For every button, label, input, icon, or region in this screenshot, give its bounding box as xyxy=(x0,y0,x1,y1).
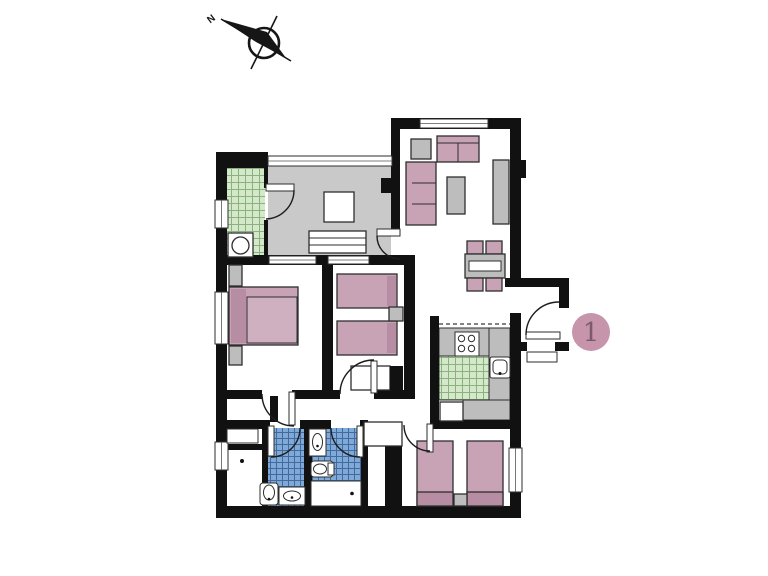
basin-drain xyxy=(291,496,294,499)
unit-badge[interactable]: 1 xyxy=(572,313,610,351)
armchair xyxy=(411,139,431,159)
burner xyxy=(458,335,464,341)
north-label: N xyxy=(205,13,217,26)
dining-chair xyxy=(486,241,502,254)
sofa-three-seat xyxy=(406,162,436,225)
kitchen-tiled-floor xyxy=(439,356,489,400)
wall-bottom xyxy=(216,506,521,518)
terrace-bench xyxy=(309,231,366,253)
wall-bath-top-a xyxy=(216,420,270,429)
toilet-tank xyxy=(328,463,334,475)
desk-cabinet xyxy=(390,366,403,390)
bedroom1 xyxy=(229,265,298,365)
nightstand xyxy=(229,346,242,365)
sink-basin xyxy=(493,360,507,374)
burner xyxy=(468,335,474,341)
washbasin-icon xyxy=(284,491,301,501)
storage-window xyxy=(215,442,228,470)
hall-closet xyxy=(227,429,258,443)
sink-bowl xyxy=(313,434,323,451)
terrace-window-band xyxy=(268,156,392,166)
unit-badge-number[interactable]: 1 xyxy=(583,318,600,348)
living-room xyxy=(406,136,509,225)
bedroom2-terrace-window xyxy=(328,256,369,264)
wall-bedroom1-bottom-a xyxy=(216,390,262,399)
double-bed-pillows xyxy=(231,289,246,343)
wall-bedroom2-bottom-b xyxy=(374,390,415,399)
bedroom1-window xyxy=(215,292,228,344)
sink-drain xyxy=(499,372,502,375)
kitchen-counter-bottom xyxy=(463,400,510,420)
wall-vestibule-right xyxy=(559,278,569,308)
living-room-window xyxy=(420,119,488,128)
floor-plan-screenshot: N xyxy=(0,0,768,576)
wall-terrace-corner xyxy=(381,178,393,193)
bedroom1-terrace-window xyxy=(269,256,316,264)
wall-bedrooms-divider xyxy=(322,255,333,399)
wall-column xyxy=(385,446,402,506)
stove-icon xyxy=(455,332,479,356)
compass-rose: N xyxy=(205,13,291,69)
tv-cabinet xyxy=(493,160,509,224)
laundry-room xyxy=(228,233,253,257)
wall-livingroom-left xyxy=(391,118,400,234)
laundry-window xyxy=(215,200,228,228)
burner xyxy=(458,345,464,351)
linen-closet xyxy=(364,422,402,446)
toilet-dot xyxy=(268,498,271,501)
burner xyxy=(468,345,474,351)
dining-chair xyxy=(467,278,483,291)
wall-vestibule-bottom-b xyxy=(555,342,569,351)
entry-threshold xyxy=(527,352,557,362)
terrace-table xyxy=(324,192,354,222)
bedroom3-window xyxy=(509,448,522,492)
nightstand xyxy=(389,307,403,321)
dining-chair xyxy=(486,278,502,291)
coffee-table xyxy=(447,177,465,214)
wall-kitchen-left xyxy=(430,316,439,426)
double-bed-duvet xyxy=(247,297,297,343)
wall-vestibule-top xyxy=(505,278,568,287)
dining-table-top xyxy=(469,261,501,271)
bed-pillow xyxy=(467,492,503,506)
floor-plan-svg: N xyxy=(0,0,768,576)
entry-door xyxy=(526,302,560,362)
bed-pillow xyxy=(387,323,396,353)
nightstand xyxy=(229,265,242,286)
storage-dot xyxy=(240,459,244,463)
washing-machine-drum xyxy=(232,237,249,254)
bedroom3-door xyxy=(404,424,433,452)
sink-drain xyxy=(316,445,319,448)
wall-vestibule-bottom-a xyxy=(518,342,527,351)
dining-chair xyxy=(467,241,483,254)
wall-laundry-thin-b xyxy=(264,220,268,256)
wall-bedroom2-bottom-a xyxy=(322,390,340,399)
dining-area xyxy=(465,241,505,291)
wall-bedroom2-right xyxy=(404,255,415,399)
wall-pilaster xyxy=(510,160,526,178)
wall-right-upper xyxy=(510,118,521,287)
bed-pillow xyxy=(417,492,453,506)
tub-drain xyxy=(350,492,354,496)
wall-bedroom1-bottom-b xyxy=(292,390,322,399)
fridge-icon xyxy=(440,402,463,421)
toilet-bowl xyxy=(314,464,327,474)
nightstand xyxy=(454,494,467,506)
bed-pillow xyxy=(387,276,396,306)
